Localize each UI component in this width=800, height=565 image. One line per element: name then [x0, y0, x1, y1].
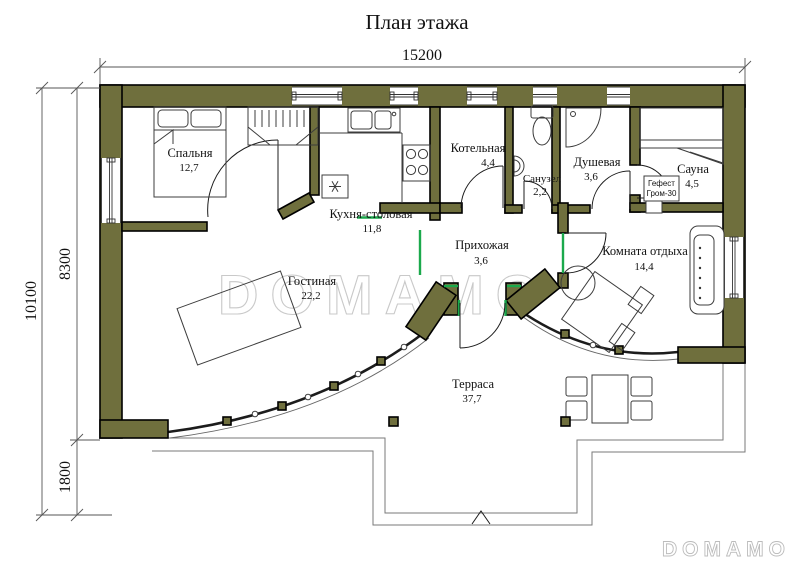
sofa — [690, 226, 724, 314]
floor-plan-drawing: DOMAMO — [0, 0, 800, 565]
kitchen-units — [320, 108, 430, 203]
terrace-posts — [389, 417, 570, 426]
window-left-bedroom — [101, 158, 121, 223]
room-label-hall: Прихожая — [455, 238, 509, 252]
dim-top-width: 15200 — [402, 47, 442, 64]
room-label-terrace: Терраса — [452, 377, 494, 391]
sauna-stove-label-1: Гефест — [648, 179, 675, 188]
dim-left-lower: 1800 — [57, 461, 74, 493]
window-right-lounge — [724, 237, 744, 298]
watermark-center: DOMAMO — [218, 263, 551, 326]
window-top-wc — [467, 87, 497, 106]
room-label-lounge: Комната отдыха — [602, 244, 688, 258]
room-area-terrace: 37,7 — [462, 393, 482, 405]
dim-left-total: 10100 — [23, 281, 40, 321]
dim-left-upper: 8300 — [57, 248, 74, 280]
page-title: План этажа — [365, 10, 469, 34]
room-label-living: Гостиная — [288, 274, 337, 288]
room-area-living: 22,2 — [301, 290, 320, 302]
window-top-shower2 — [607, 87, 630, 106]
room-area-lounge: 14,4 — [634, 261, 654, 273]
terrace-outline — [152, 364, 745, 525]
fridge — [322, 175, 348, 198]
room-area-shower: 3,6 — [584, 171, 598, 183]
room-area-wc: 2,2 — [533, 186, 547, 198]
room-label-shower: Душевая — [574, 155, 621, 169]
floor-plan-page: DOMAMO — [0, 0, 800, 565]
room-area-bedroom: 12,7 — [179, 162, 199, 174]
room-label-bedroom: Спальня — [167, 146, 212, 160]
shower-tray — [566, 108, 601, 147]
terrace-dining-set — [566, 375, 652, 423]
room-label-boiler: Котельная — [451, 141, 506, 155]
window-top-shower1 — [533, 87, 557, 106]
room-area-kitchen: 11,8 — [363, 223, 382, 235]
sauna-stove-label-2: Гром-30 — [647, 189, 677, 198]
room-area-sauna: 4,5 — [685, 178, 699, 190]
window-top-boiler — [390, 87, 418, 106]
room-label-sauna: Сауна — [677, 162, 709, 176]
watermark-corner: DOMAMO — [662, 538, 790, 561]
room-label-kitchen: Кухня-столовая — [330, 207, 413, 221]
wardrobe — [248, 107, 318, 145]
room-area-boiler: 4,4 — [481, 157, 495, 169]
window-top-kitchen — [292, 87, 342, 106]
room-area-hall: 3,6 — [474, 255, 488, 267]
toilet — [531, 106, 553, 145]
sauna-benches — [640, 108, 723, 164]
room-label-wc: Санузел — [523, 173, 562, 185]
